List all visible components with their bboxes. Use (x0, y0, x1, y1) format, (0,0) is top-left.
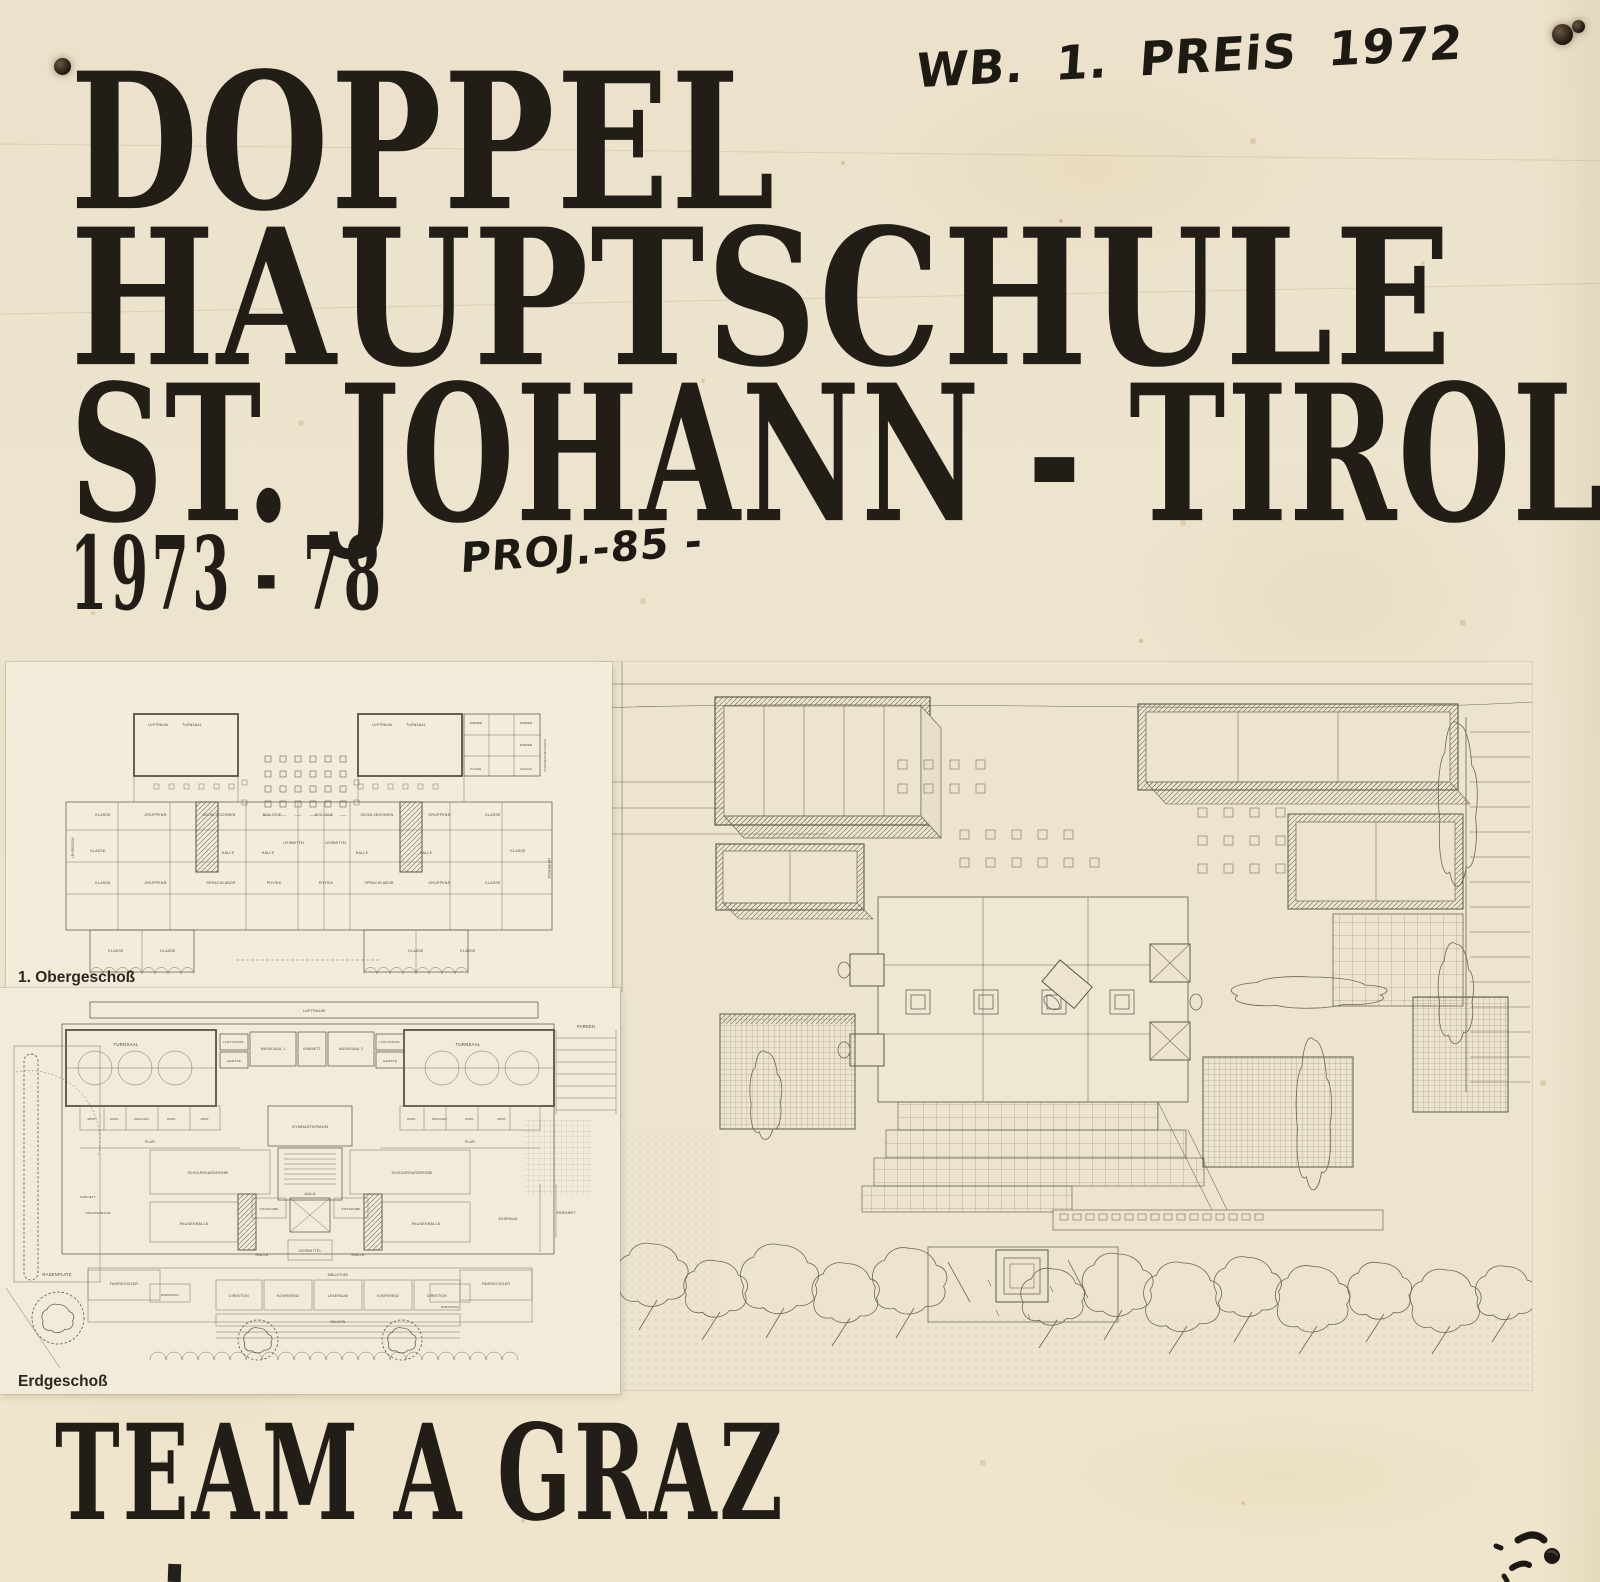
room-label: GRUPPENR. (428, 881, 451, 885)
room-label: MUSIKSAAL 1 (261, 1047, 285, 1051)
room-label: KONFERENZ (277, 1294, 299, 1298)
room-label: AULA (304, 1191, 315, 1196)
upper-plan-caption: 1. Obergeschoß (18, 969, 136, 986)
building-envelope (62, 1024, 554, 1254)
title-years: 1973 - 78 (70, 524, 384, 625)
ground-floor-plan-drawing: LUFTRAUM TURNSAAL TURNSAAL (0, 988, 620, 1394)
room-label: LEHRMITTEL (298, 1249, 321, 1253)
room-label: ABST. (200, 1117, 209, 1121)
room-label: HALLE (255, 1253, 268, 1257)
room-label: KABINETT (80, 1195, 96, 1199)
room-label: GEOM.ZEICHNEN (203, 813, 236, 817)
handwritten-award-note: WB. 1. PREiS 1972 (914, 15, 1465, 99)
room-label: BIBLIOTHEK (328, 1273, 349, 1277)
room-label: HALLE (420, 851, 433, 855)
room-label: SCHULWARTWOHNUNG (543, 739, 547, 772)
area-label: PARKEN (577, 1024, 595, 1029)
room-label: LEHRMITTEL (325, 841, 347, 845)
room-label: FLUR (465, 1140, 475, 1144)
gravel-texture (598, 1317, 1532, 1390)
room-label: DIREKTION (427, 1294, 447, 1298)
pin-hole-icon (1572, 20, 1585, 33)
room-label: KÜCHE (470, 767, 481, 771)
room-label: KABINETT (303, 1047, 321, 1051)
room-label: GERÄTE (227, 1059, 241, 1063)
room-label: GYMNASTIKRAUM (292, 1125, 328, 1129)
room-label: TURNSAAL (455, 1042, 480, 1047)
room-label: BIOLOGIE (315, 813, 334, 817)
courtyard-roof (838, 897, 1202, 1102)
room-label: PHYSIK (267, 881, 282, 885)
room-label: GRUPPENRAUM (85, 1211, 110, 1215)
room-label: KLASSE (408, 949, 424, 953)
room-label: WINDFANG (161, 1293, 180, 1297)
room-label: GRUPPENR. (144, 813, 167, 817)
room-label: ESSRAUM (499, 1217, 518, 1221)
room-label: BIOLOGIE (263, 813, 282, 817)
room-label: ZIMMER (470, 721, 483, 725)
room-label: SPRACHLABOR (364, 881, 394, 885)
room-label: KONFERENZ (377, 1294, 399, 1298)
room-label: UMKL. (110, 1117, 120, 1121)
room-label: SPRACHLABOR (206, 881, 236, 885)
room-label: LOGGIA (520, 767, 532, 771)
room-label: LUFTRAUM (303, 1009, 325, 1013)
upper-floor-plan-sheet: LUFTRAUM TURNSAAL LUFTRAUM TURNSAAL ZIMM… (6, 662, 612, 990)
room-label: WASCHR. (432, 1117, 447, 1121)
room-label: HALLE (356, 851, 369, 855)
ground-plan-caption: Erdgeschoß (18, 1373, 108, 1390)
room-label: KLASSE (160, 949, 176, 953)
foxing-specks (0, 0, 2, 2)
upper-floor-plan-drawing: LUFTRAUM TURNSAAL LUFTRAUM TURNSAAL ZIMM… (6, 662, 612, 990)
room-label: KLASSE (95, 813, 111, 817)
room-label: LEHRMITTEL (283, 841, 305, 845)
room-label: GEOM.ZEICHNEN (361, 813, 394, 817)
axonometric-drawing (598, 662, 1532, 1390)
axonometric-sheet (598, 662, 1532, 1390)
cut-off-letter-fragment (168, 1564, 182, 1582)
room-label: HALLE (351, 1253, 364, 1257)
poster-board: DOPPEL HAUPTSCHULE ST. JOHANN - TIROL 19… (0, 0, 1600, 1582)
room-label: LÜFTUNGSZ. (223, 1040, 244, 1044)
room-label: FLUR (145, 1140, 155, 1144)
room-label: KLASSE (95, 881, 111, 885)
team-signature: TEAM A GRAZ (55, 1408, 786, 1540)
room-label: PAUSENHALLE (412, 1222, 441, 1226)
room-label: PHYSIK (319, 881, 334, 885)
room-label: KLASSE (485, 881, 501, 885)
room-label: LÜFTUNGSZ. (379, 1040, 400, 1044)
room-label: GRUPPENR. (428, 813, 451, 817)
room-label: KLASSE (108, 949, 124, 953)
room-label: GERÄTE (383, 1059, 397, 1063)
sports-field (6, 1046, 100, 1368)
room-label: WINDFANG (441, 1305, 460, 1309)
ink-scribble (1460, 1510, 1590, 1582)
room-label: FAHRSCHÜLER (110, 1282, 139, 1286)
room-label: UMKL. (407, 1117, 417, 1121)
room-label: TURNSAAL (406, 723, 426, 727)
ground-floor-plan-sheet: LUFTRAUM TURNSAAL TURNSAAL (0, 988, 620, 1394)
area-label: EINFAHRT (557, 1211, 577, 1215)
room-label: KLASSE (90, 849, 106, 853)
room-label: LEHRERZIM. (71, 837, 75, 858)
room-label: PAUSENHALLE (180, 1222, 209, 1226)
pin-hole-icon (1552, 24, 1573, 45)
room-label: UMKL. (465, 1117, 475, 1121)
room-label: SCHÜLERGARDEROBE (187, 1171, 229, 1175)
room-label: LESERAUM (328, 1294, 348, 1298)
center-court (264, 750, 348, 816)
roof-slab-left (716, 844, 873, 919)
room-label: FAHRSCHÜLER (482, 1282, 511, 1286)
room-label: UMKL. (167, 1117, 177, 1121)
room-label: LUFTRAUM (148, 723, 168, 727)
room-label: SITZGRUBE (342, 1207, 361, 1211)
room-label: TURNSAAL (182, 723, 202, 727)
parking-area (524, 1030, 616, 1252)
room-label: LEHRERZIM. (547, 858, 551, 879)
gym-left (66, 1030, 216, 1106)
roof-slab-right-gym (1138, 704, 1470, 804)
room-label: KLASSE (510, 849, 526, 853)
room-label: GRUPPENR. (144, 881, 167, 885)
pin-hole-icon (54, 58, 71, 75)
edge-shading (1540, 0, 1600, 1582)
room-label: MUSIKSAAL 2 (339, 1047, 363, 1051)
area-label: RASENPLATZ (42, 1272, 71, 1277)
room-label: TURNSAAL (113, 1042, 138, 1047)
administration-row (88, 1268, 532, 1326)
room-label: ABST. (497, 1117, 506, 1121)
room-label: SCHÜLERGARDEROBE (391, 1171, 433, 1175)
room-label: ZIMMER (520, 721, 533, 725)
room-label: HALLE (262, 851, 275, 855)
room-label: HALLE (222, 851, 235, 855)
room-label: LUFTRAUM (372, 723, 392, 727)
room-label: BALKON (331, 1320, 346, 1324)
room-label: ABST. (87, 1117, 96, 1121)
room-label: DIREKTION (229, 1294, 249, 1298)
room-label: KLASSE (485, 813, 501, 817)
room-label: KLASSE (460, 949, 476, 953)
room-label: ZIMMER (520, 743, 533, 747)
room-label: WASCHR. (134, 1117, 149, 1121)
room-label: SITZGRUBE (260, 1207, 279, 1211)
